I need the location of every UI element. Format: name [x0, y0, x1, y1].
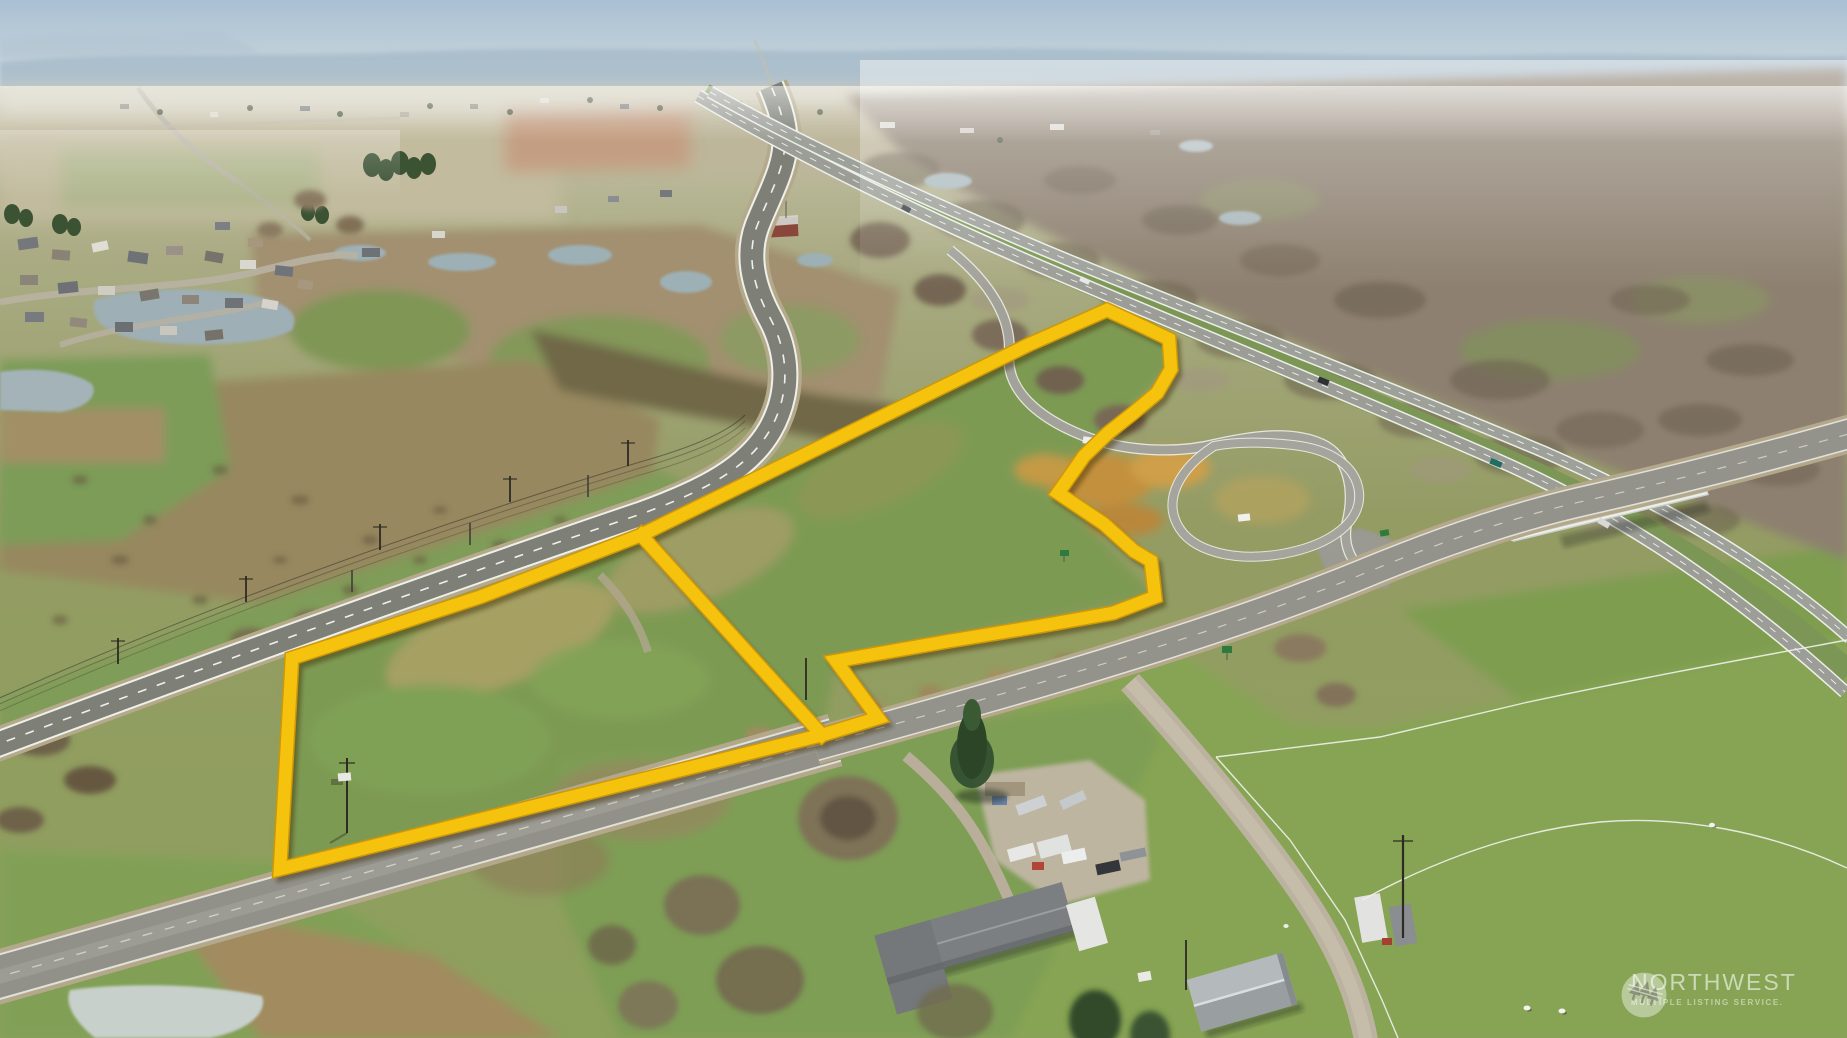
aerial-photo-canvas [0, 0, 1847, 1038]
aerial-photo: NORTHWEST MULTIPLE LISTING SERVICE. [0, 0, 1847, 1038]
